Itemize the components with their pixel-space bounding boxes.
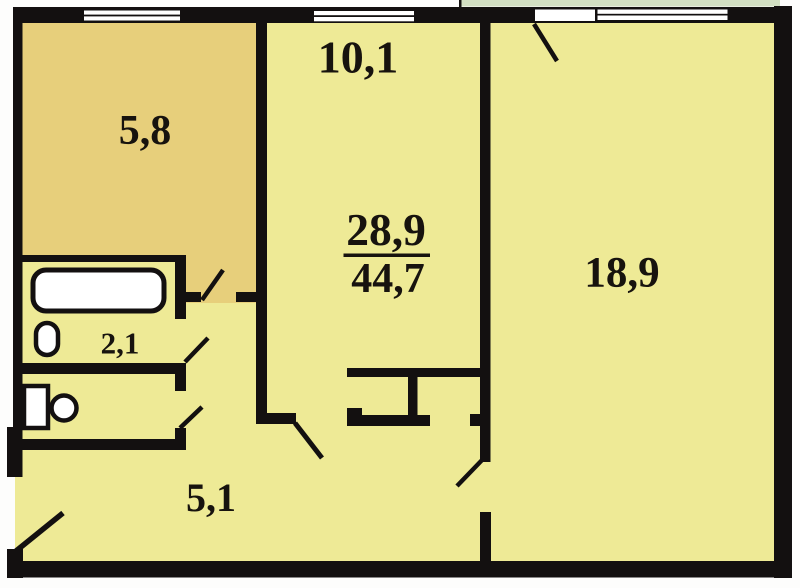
svg-text:44,7: 44,7 [351,256,425,302]
svg-text:28,9: 28,9 [346,204,426,255]
svg-text:5,8: 5,8 [119,108,172,154]
svg-text:5,1: 5,1 [186,475,236,520]
svg-text:10,1: 10,1 [318,32,399,83]
svg-text:18,9: 18,9 [584,250,659,297]
svg-text:2,1: 2,1 [101,326,140,361]
